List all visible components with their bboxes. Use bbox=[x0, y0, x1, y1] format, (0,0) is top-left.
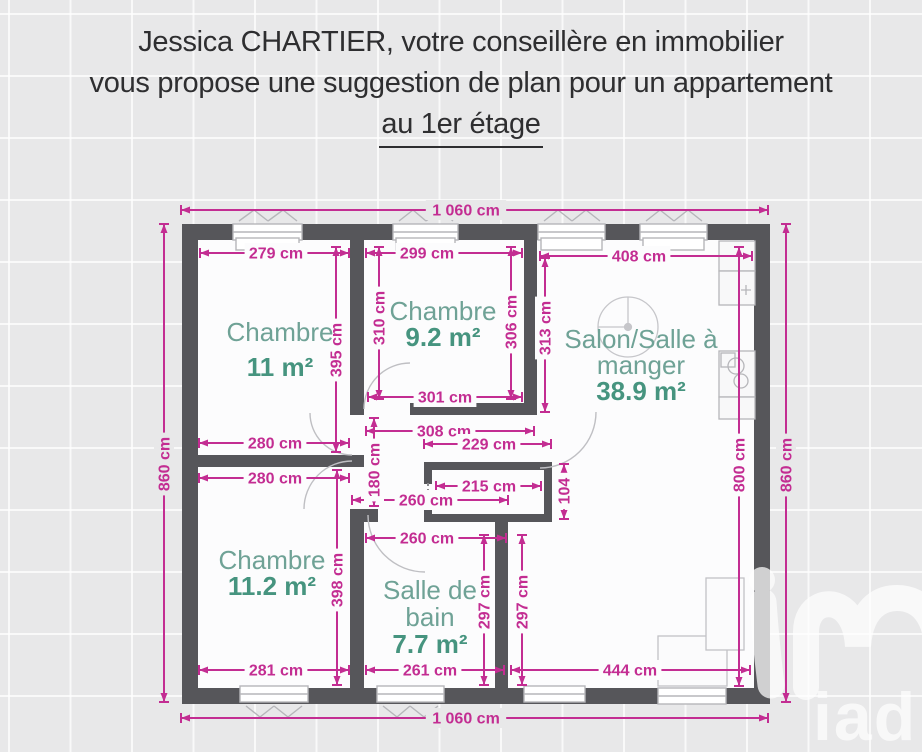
wall-left bbox=[182, 224, 198, 704]
flyer-page: Jessica CHARTIER, votre conseillère en i… bbox=[0, 0, 922, 752]
dimension-label: 279 cm bbox=[249, 246, 303, 263]
kitchen-hob bbox=[719, 271, 755, 305]
room-area: 11 m² bbox=[247, 352, 314, 382]
wall-bath-salon bbox=[495, 522, 508, 688]
wall-bedrooms-divider-upper bbox=[350, 240, 364, 415]
dimension-label: 408 cm bbox=[612, 249, 666, 266]
dimension-label: 1 060 cm bbox=[432, 203, 500, 220]
wall-wc-right bbox=[544, 462, 552, 522]
dimension-label: 260 cm bbox=[400, 531, 454, 548]
shutter-icon bbox=[246, 706, 302, 717]
dimension-label: 261 cm bbox=[403, 663, 457, 680]
dimension-label: 229 cm bbox=[462, 437, 516, 454]
dimension-label: 260 cm bbox=[399, 493, 453, 510]
dimension-label: 280 cm bbox=[248, 436, 302, 453]
floor-plan: 1 060 cm279 cm299 cm408 cm301 cm280 cm30… bbox=[0, 0, 922, 752]
dimension-label: 800 cm bbox=[732, 438, 749, 492]
dimension-label: 860 cm bbox=[779, 438, 796, 492]
window bbox=[524, 686, 585, 702]
room-name: Chambre bbox=[227, 317, 334, 347]
dimension-label: 297 cm bbox=[515, 575, 532, 629]
dimension-label: 860 cm bbox=[157, 437, 174, 491]
dimension-label: 398 cm bbox=[330, 553, 347, 607]
wall-wc-top bbox=[424, 462, 552, 470]
wall-bedrooms-divider-lower bbox=[350, 509, 364, 688]
room-area: 7.7 m² bbox=[392, 629, 467, 659]
dimension-label: 306 cm bbox=[504, 295, 521, 349]
dimension-label: 104 bbox=[557, 478, 574, 505]
dimension-label: 299 cm bbox=[400, 246, 454, 263]
iad-logo-loop bbox=[806, 598, 922, 687]
room-area: 38.9 m² bbox=[596, 376, 686, 406]
dimension-label: 280 cm bbox=[248, 471, 302, 488]
room-label: Chambre11.2 m² bbox=[219, 545, 326, 601]
kitchen-cabinet bbox=[719, 397, 755, 419]
dimension: 860 cm bbox=[776, 224, 796, 702]
wall-chambre11-chambre112 bbox=[196, 455, 364, 467]
iad-logo-stem bbox=[763, 602, 771, 685]
dimension-label: 310 cm bbox=[372, 291, 389, 345]
dimension-label: 215 cm bbox=[462, 479, 516, 496]
room-label: Chambre9.2 m² bbox=[390, 296, 497, 352]
room-name: bain bbox=[405, 602, 454, 632]
shutter-icon bbox=[646, 210, 702, 221]
dimension-label: 297 cm bbox=[477, 575, 494, 629]
dimension: 1 060 cm bbox=[181, 708, 768, 728]
room-area: 9.2 m² bbox=[405, 322, 480, 352]
wall-bath-top-left bbox=[350, 509, 378, 522]
dimension-label: 444 cm bbox=[603, 663, 657, 680]
shutter-icon bbox=[239, 210, 297, 221]
window bbox=[538, 210, 605, 250]
room-area: 11.2 m² bbox=[228, 571, 317, 601]
shutter-icon bbox=[544, 210, 600, 221]
dimension-label: 301 cm bbox=[418, 390, 472, 407]
iad-watermark-text: iad bbox=[813, 679, 917, 752]
window bbox=[640, 210, 707, 250]
dimension-label: 281 cm bbox=[249, 663, 303, 680]
dimension-label: 1 060 cm bbox=[432, 711, 500, 728]
wall-wc-bottom bbox=[424, 514, 552, 522]
dimension-label: 180 cm bbox=[367, 443, 384, 497]
room-name: Salle de bbox=[383, 575, 477, 605]
iad-watermark: iad bbox=[749, 567, 922, 752]
window bbox=[240, 686, 308, 717]
dimension: 860 cm bbox=[154, 224, 174, 702]
wall-wc-left-upper bbox=[424, 462, 432, 484]
dimension-label: 313 cm bbox=[538, 301, 555, 355]
